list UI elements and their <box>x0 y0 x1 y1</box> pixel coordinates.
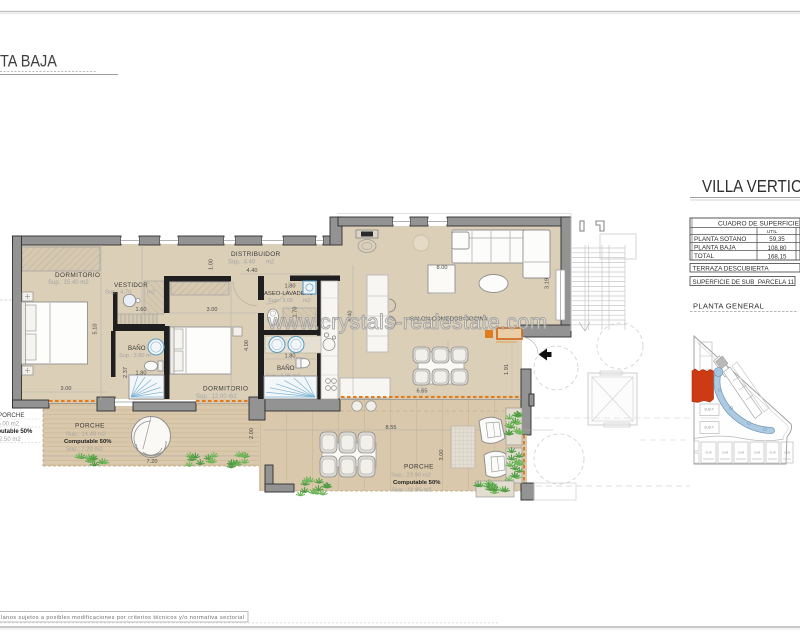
svg-text:PORCHE: PORCHE <box>75 423 105 430</box>
svg-text:59,35: 59,35 <box>769 236 785 243</box>
svg-text:Computable 50%: Computable 50% <box>393 480 441 486</box>
svg-text:Sup.: 11.95 m2: Sup.: 11.95 m2 <box>392 488 432 494</box>
svg-text:TERRAZA DESCUBIERTA: TERRAZA DESCUBIERTA <box>693 266 770 273</box>
svg-text:1.00: 1.00 <box>209 259 215 270</box>
svg-text:4.40: 4.40 <box>247 268 258 274</box>
svg-text:PLANTA BAJA: PLANTA BAJA <box>694 245 737 252</box>
svg-text:VILLA VERTICA: VILLA VERTICA <box>702 176 800 196</box>
svg-text:8.55: 8.55 <box>386 425 397 431</box>
svg-text:Sup.: 3.05: Sup.: 3.05 <box>268 298 293 304</box>
svg-text:m2: m2 <box>303 298 311 304</box>
svg-text:PLANTA GENERAL: PLANTA GENERAL <box>693 302 764 311</box>
svg-text:Sup.: 15.40 m2: Sup.: 15.40 m2 <box>48 280 89 286</box>
svg-text:3.19: 3.19 <box>545 278 551 289</box>
svg-text:SUB: SUB <box>769 451 775 455</box>
svg-text:BAÑO: BAÑO <box>128 345 146 352</box>
svg-text:1.60: 1.60 <box>136 307 147 313</box>
svg-text:2.00: 2.00 <box>249 428 255 439</box>
svg-text:Sup.: 7.20 m2: Sup.: 7.20 m2 <box>66 447 103 453</box>
svg-text:SUB P: SUB P <box>704 408 714 412</box>
svg-text:1.80: 1.80 <box>285 284 296 290</box>
svg-text:PORCHE: PORCHE <box>0 412 24 419</box>
svg-text:DORMITORIO: DORMITORIO <box>55 272 100 279</box>
svg-text:mputable 50%: mputable 50% <box>0 429 33 435</box>
svg-text:TA BAJA: TA BAJA <box>0 53 57 71</box>
svg-text:SUB: SUB <box>705 451 711 455</box>
svg-text:3.00: 3.00 <box>207 307 218 313</box>
svg-text:SUB: SUB <box>784 451 790 455</box>
svg-text:u 2.50 m2: u 2.50 m2 <box>0 437 21 443</box>
svg-text:CUADRO DE SUPERFICIES: CUADRO DE SUPERFICIES <box>718 221 800 228</box>
svg-text:DISTRIBUIDOR: DISTRIBUIDOR <box>231 251 280 258</box>
svg-text:8.00: 8.00 <box>437 265 448 271</box>
svg-text:6.65: 6.65 <box>417 389 428 395</box>
svg-text:SUB P: SUB P <box>704 426 714 430</box>
svg-text:Sup.: 3.80 m: Sup.: 3.80 m <box>119 353 151 359</box>
svg-text:m2: m2 <box>266 260 275 266</box>
svg-text:5.10: 5.10 <box>93 324 99 335</box>
svg-text:3.00: 3.00 <box>61 386 72 392</box>
svg-text:1.80: 1.80 <box>285 354 296 360</box>
svg-text:1.80: 1.80 <box>136 371 147 377</box>
svg-text:SUB: SUB <box>738 451 744 455</box>
svg-text:: 5.00 m2: : 5.00 m2 <box>0 422 20 428</box>
svg-text:DORMITORIO: DORMITORIO <box>203 386 248 393</box>
svg-text:168,15: 168,15 <box>768 254 787 261</box>
svg-text:Sup.: 4.40: Sup.: 4.40 <box>228 260 256 266</box>
svg-text:7.20: 7.20 <box>147 459 158 465</box>
svg-text:VESTIDOR: VESTIDOR <box>114 282 148 289</box>
svg-text:4.00: 4.00 <box>244 340 250 351</box>
svg-text:108,80: 108,80 <box>768 245 787 252</box>
svg-text:Computable 50%: Computable 50% <box>64 439 112 445</box>
svg-text:SUB: SUB <box>722 451 728 455</box>
svg-text:www.crystals-realestate.com: www.crystals-realestate.com <box>267 311 548 334</box>
svg-text:TOTAL: TOTAL <box>694 253 714 260</box>
svg-text:SUB: SUB <box>754 451 760 455</box>
svg-text:Sup.: 23.90 m2: Sup.: 23.90 m2 <box>391 473 431 479</box>
svg-text:BAÑO: BAÑO <box>277 365 295 372</box>
svg-text:3.00: 3.00 <box>439 450 445 461</box>
svg-text:PLANTA SOTANO: PLANTA SOTANO <box>694 236 746 243</box>
svg-text:PORCHE: PORCHE <box>404 464 434 471</box>
svg-text:SUPERFICIE DE SUB_PARCELA 11: SUPERFICIE DE SUB_PARCELA 11 <box>693 279 795 286</box>
svg-text:Sup.: 14.40 m2: Sup.: 14.40 m2 <box>66 432 106 438</box>
svg-text:m2: m2 <box>147 290 155 296</box>
svg-text:lanos sujetos a posibles modif: lanos sujetos a posibles modificaciones … <box>1 615 244 621</box>
svg-text:1.91: 1.91 <box>504 364 510 375</box>
svg-text:UTIL: UTIL <box>767 229 778 235</box>
svg-text:2.37: 2.37 <box>123 367 129 378</box>
